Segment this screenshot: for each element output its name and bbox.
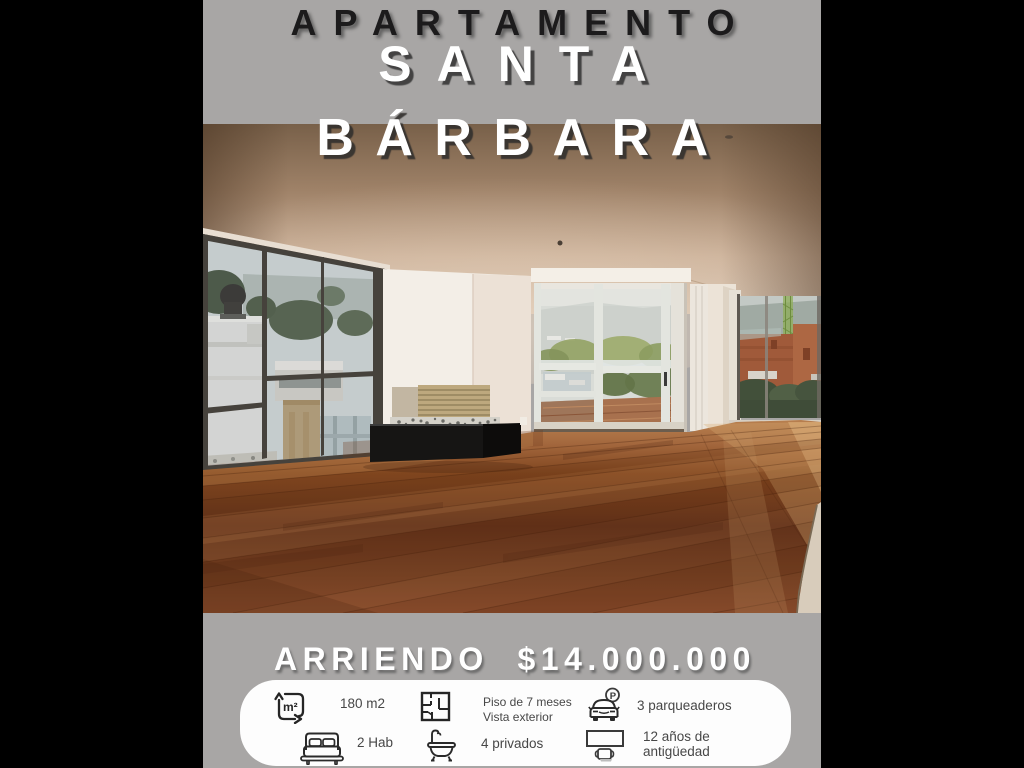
svg-text:m²: m² [283,700,298,714]
